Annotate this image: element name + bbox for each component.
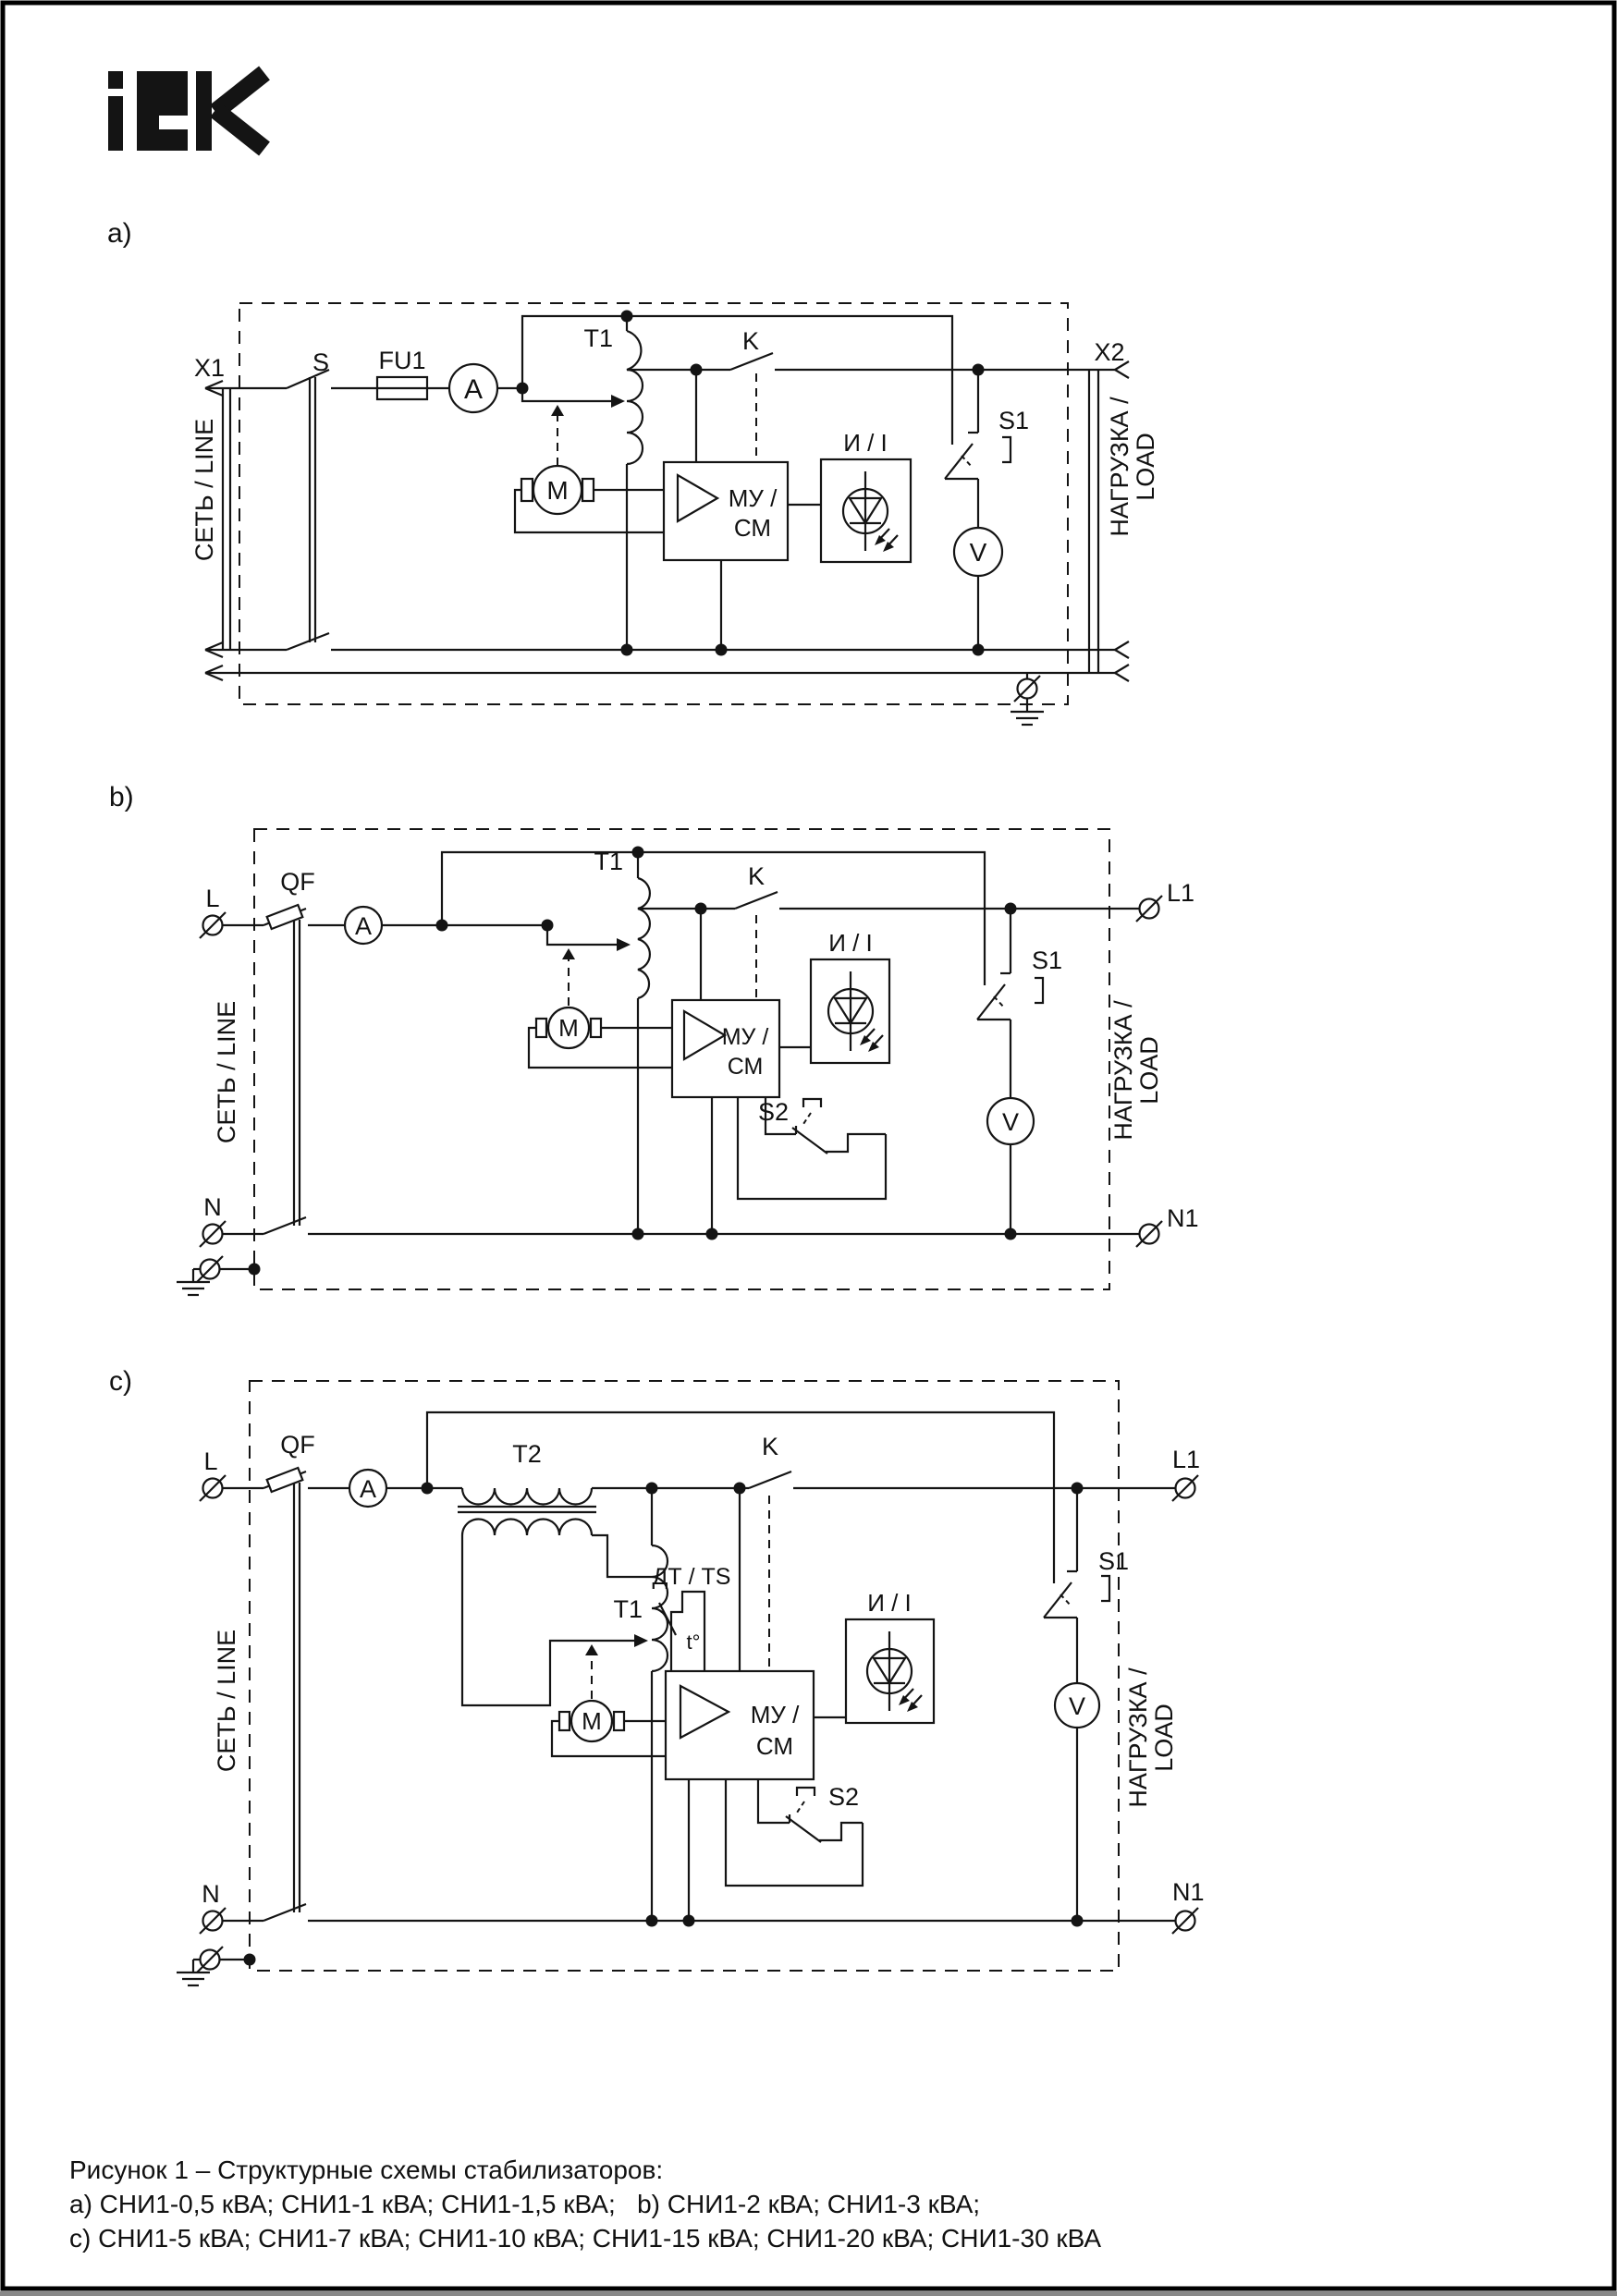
voltmeter-b: V — [987, 1098, 1034, 1144]
iek-logo — [108, 71, 264, 151]
pe-terminal-c — [177, 1947, 223, 1985]
label-line-c: СЕТЬ / LINE — [213, 1630, 240, 1772]
indicator-b — [811, 959, 889, 1063]
label-dt-ts: ДТ / TS — [653, 1564, 731, 1590]
pe-terminal-b — [177, 1256, 223, 1295]
terminal-n1-b — [1136, 1221, 1162, 1247]
terminal-l-c — [200, 1475, 226, 1501]
motor-c: М — [559, 1701, 624, 1741]
caption-line-1: Рисунок 1 – Структурные схемы стабилизат… — [69, 2156, 663, 2184]
svg-text:М: М — [546, 476, 568, 505]
diagram-b: b) — [109, 782, 1199, 1295]
svg-text:М: М — [558, 1014, 579, 1042]
label-x2: X2 — [1094, 338, 1124, 366]
page-border — [3, 3, 1614, 2289]
label-load2-c: LOAD — [1150, 1704, 1178, 1772]
label-s1-a: S1 — [998, 407, 1029, 434]
control-unit-b: МУ / СМ — [672, 1000, 779, 1097]
diagram-a-index: a) — [107, 218, 132, 249]
label-qf-b: QF — [280, 868, 315, 896]
label-line-b: СЕТЬ / LINE — [213, 1001, 240, 1143]
label-l1-c: L1 — [1172, 1446, 1200, 1473]
label-load1-a: НАГРУЗКА / — [1106, 397, 1133, 537]
label-s2-c: S2 — [828, 1783, 859, 1811]
breaker-qf-b — [267, 905, 303, 929]
svg-text:МУ /: МУ / — [722, 1024, 769, 1050]
switch-s2-b — [803, 1099, 821, 1107]
switch-s1-c — [1101, 1576, 1109, 1601]
label-n: N — [203, 1193, 222, 1221]
booster-t2 — [458, 1488, 596, 1535]
label-t2: T2 — [512, 1440, 542, 1468]
voltmeter-c: V — [1055, 1683, 1099, 1728]
svg-text:V: V — [1069, 1692, 1085, 1720]
label-x1: X1 — [194, 354, 225, 382]
diagram-c-index: c) — [109, 1366, 132, 1397]
svg-text:СМ: СМ — [756, 1732, 793, 1760]
label-s1-c: S1 — [1098, 1547, 1129, 1575]
label-k-b: K — [748, 862, 765, 890]
document-page: a) — [0, 0, 1617, 2291]
terminal-n — [200, 1221, 226, 1247]
label-s1-b: S1 — [1032, 946, 1062, 974]
terminal-l1-c — [1172, 1475, 1198, 1501]
indicator-c — [846, 1619, 934, 1723]
label-l-c: L — [203, 1447, 217, 1475]
terminal-l1-b — [1136, 896, 1162, 922]
label-indicator-a: И / I — [843, 429, 888, 457]
diagram-a: a) — [107, 218, 1159, 725]
label-indicator-b: И / I — [828, 929, 873, 957]
ammeter-c: A — [349, 1470, 386, 1507]
label-load1-c: НАГРУЗКА / — [1124, 1667, 1152, 1808]
transformer-t1-b — [638, 878, 650, 998]
enclosure-a — [239, 303, 1068, 704]
label-t1-c: T1 — [613, 1595, 643, 1623]
voltmeter-a: V — [954, 528, 1002, 576]
label-indicator-c: И / I — [867, 1589, 912, 1617]
figure-caption: Рисунок 1 – Структурные схемы стабилизат… — [69, 2156, 1101, 2253]
label-load2-b: LOAD — [1135, 1036, 1163, 1105]
label-n-c: N — [202, 1880, 220, 1908]
svg-text:A: A — [464, 374, 483, 405]
label-l1-b: L1 — [1167, 879, 1194, 907]
label-line-a: СЕТЬ / LINE — [190, 419, 218, 561]
wiring-b — [193, 847, 1140, 1276]
label-fu1: FU1 — [378, 347, 425, 374]
motor-b: М — [536, 1008, 601, 1048]
switch-s1-a — [1002, 437, 1011, 462]
schematic-figure: a) — [0, 0, 1617, 2291]
label-load2-a: LOAD — [1132, 433, 1159, 501]
label-t1-b: T1 — [594, 848, 623, 875]
terminal-n1-c — [1172, 1908, 1198, 1934]
caption-line-2: a) СНИ1-0,5 кВА; СНИ1-1 кВА; СНИ1-1,5 кВ… — [69, 2190, 980, 2218]
label-load1-b: НАГРУЗКА / — [1109, 1000, 1137, 1141]
terminal-l — [200, 912, 226, 938]
label-n1-c: N1 — [1172, 1878, 1205, 1906]
svg-text:МУ /: МУ / — [751, 1701, 800, 1728]
switch-s1-b — [1035, 978, 1043, 1003]
terminal-n-c — [200, 1908, 226, 1934]
label-n1-b: N1 — [1167, 1204, 1199, 1232]
svg-text:A: A — [360, 1475, 376, 1503]
label-s2-b: S2 — [758, 1098, 789, 1126]
label-t1-a: T1 — [583, 324, 613, 352]
label-k-c: K — [762, 1433, 778, 1460]
svg-text:М: М — [582, 1707, 602, 1735]
switch-s2-c — [797, 1788, 815, 1796]
svg-text:t°: t° — [687, 1630, 701, 1654]
svg-text:V: V — [970, 538, 987, 567]
svg-text:СМ: СМ — [734, 514, 771, 542]
breaker-qf-c — [267, 1468, 303, 1492]
label-l: L — [205, 885, 219, 912]
ammeter-a: A — [449, 364, 497, 412]
transformer-t1-a — [627, 331, 643, 464]
svg-text:СМ: СМ — [728, 1054, 764, 1080]
indicator-a — [821, 459, 911, 562]
svg-text:A: A — [355, 912, 372, 940]
control-unit-c: МУ / СМ — [666, 1671, 814, 1779]
label-qf-c: QF — [280, 1431, 315, 1459]
svg-text:МУ /: МУ / — [729, 484, 778, 512]
label-k-a: K — [742, 327, 759, 355]
motor-a: М — [521, 466, 594, 514]
svg-text:V: V — [1002, 1108, 1019, 1136]
ammeter-b: A — [345, 907, 382, 944]
pe-terminal-a — [1011, 676, 1044, 725]
diagram-c: c) — [109, 1366, 1205, 1985]
control-unit-a: МУ / СМ — [664, 462, 788, 560]
diagram-b-index: b) — [109, 782, 134, 812]
label-s: S — [312, 348, 329, 376]
caption-line-3: c) СНИ1-5 кВА; СНИ1-7 кВА; СНИ1-10 кВА; … — [69, 2224, 1101, 2253]
